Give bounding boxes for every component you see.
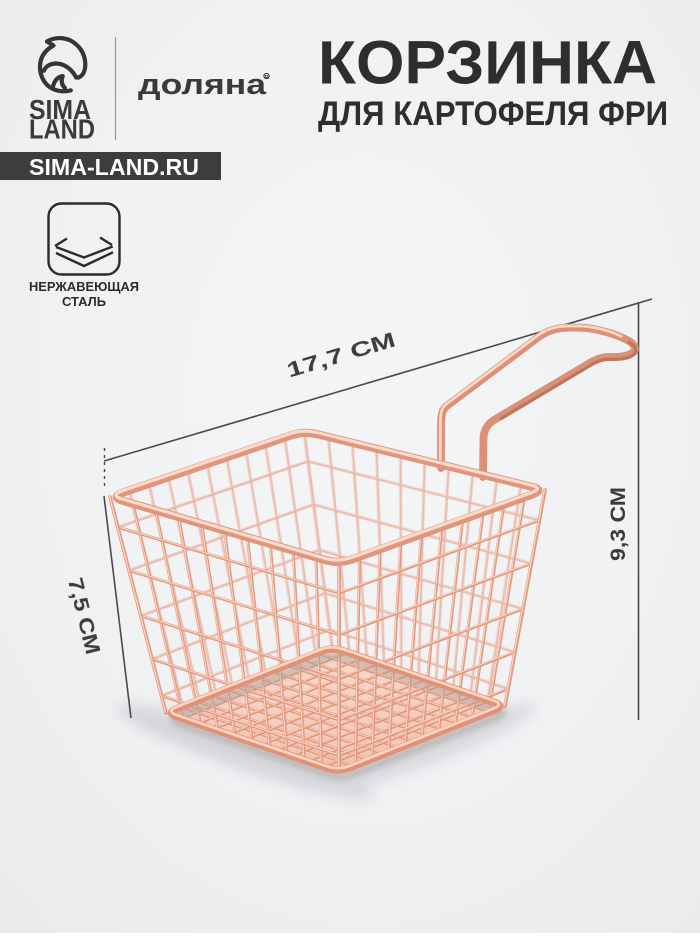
svg-text:СТАЛЬ: СТАЛЬ (62, 294, 106, 309)
svg-text:ДЛЯ КАРТОФЕЛЯ ФРИ: ДЛЯ КАРТОФЕЛЯ ФРИ (318, 95, 668, 133)
svg-text:LAND: LAND (29, 114, 95, 145)
svg-text:9,3 СМ: 9,3 СМ (607, 487, 630, 561)
svg-text:НЕРЖАВЕЮЩАЯ: НЕРЖАВЕЮЩАЯ (29, 279, 139, 294)
svg-text:R: R (265, 75, 269, 81)
svg-text:SIMA-LAND.RU: SIMA-LAND.RU (29, 154, 199, 180)
svg-text:КОРЗИНКА: КОРЗИНКА (318, 29, 657, 98)
svg-text:доляна: доляна (138, 69, 267, 101)
